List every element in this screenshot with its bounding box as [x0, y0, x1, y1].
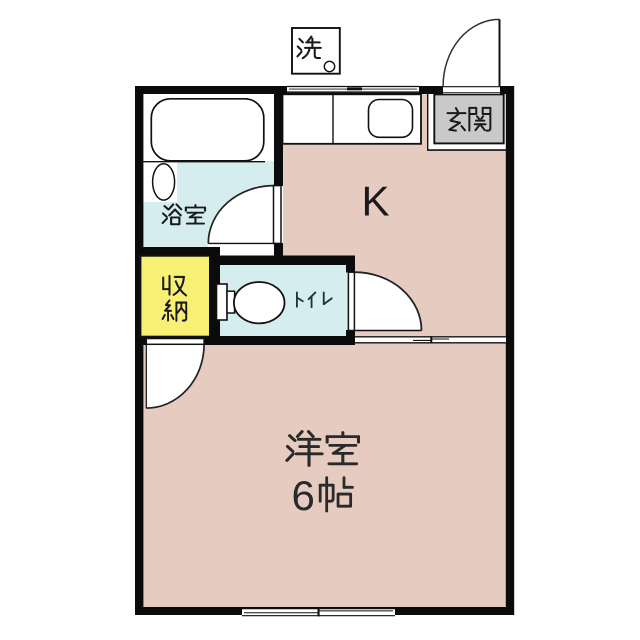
svg-text:6: 6	[292, 472, 315, 519]
svg-text:K: K	[361, 178, 389, 225]
